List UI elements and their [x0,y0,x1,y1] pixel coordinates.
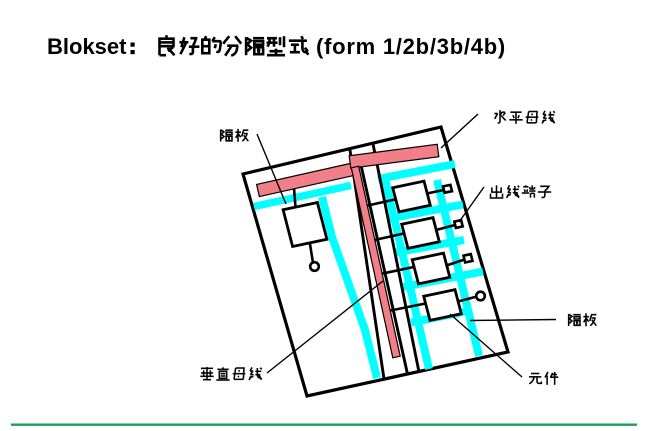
svg-text:Blokset: Blokset [47,34,127,59]
svg-text:(form 1/2b/3b/4b): (form 1/2b/3b/4b) [316,34,506,59]
